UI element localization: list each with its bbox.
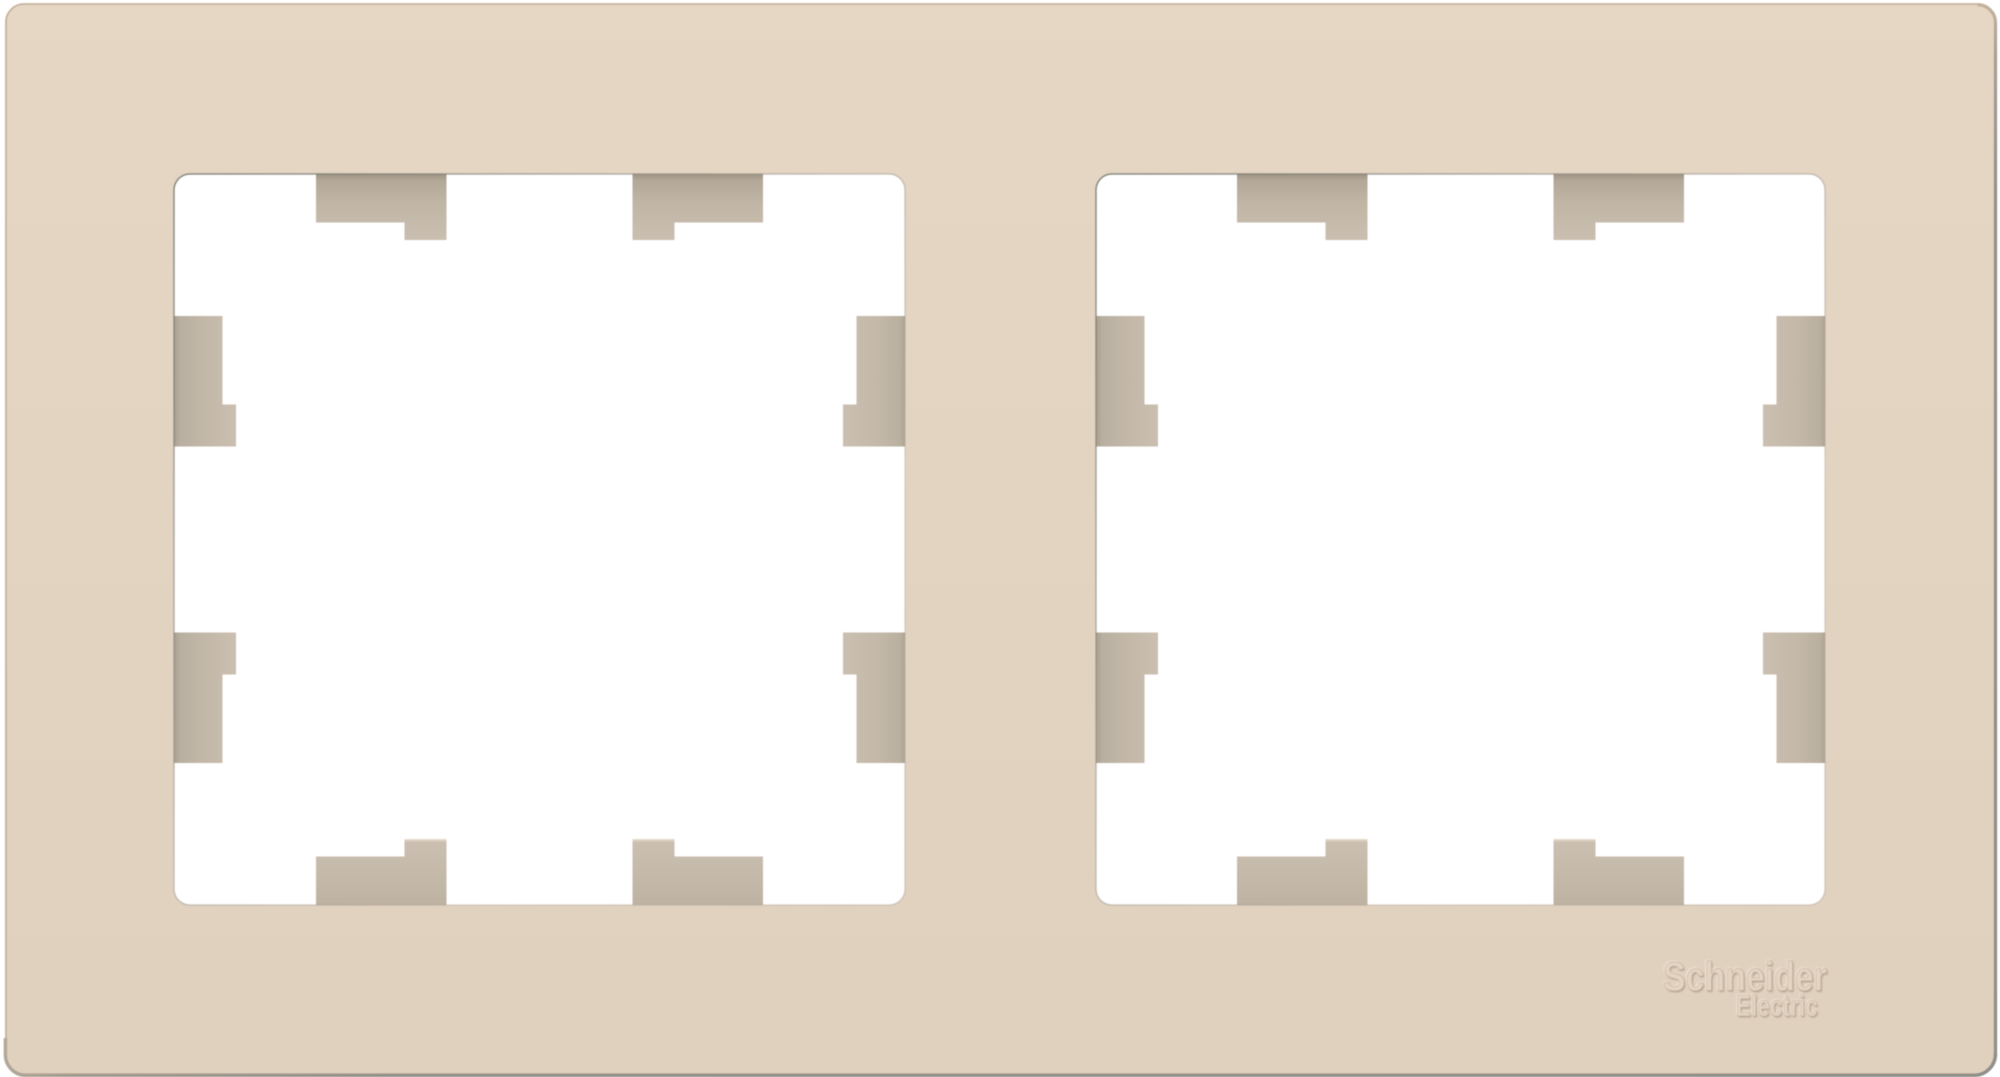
svg-text:Electric: Electric [1736,990,1818,1023]
